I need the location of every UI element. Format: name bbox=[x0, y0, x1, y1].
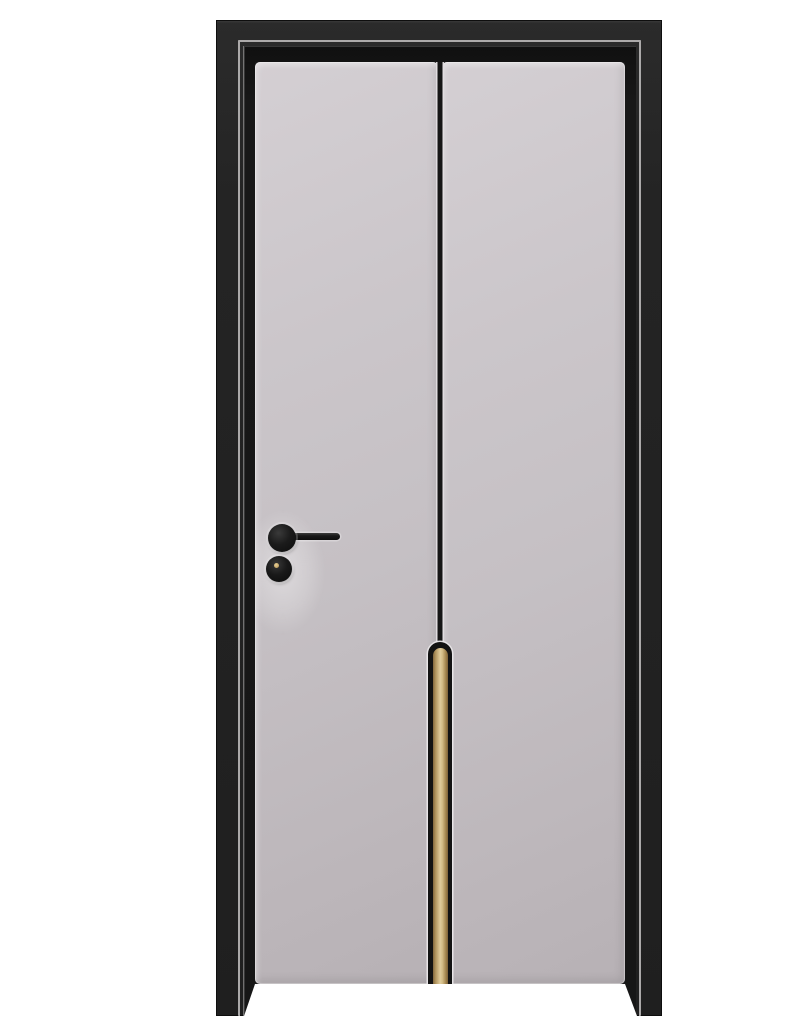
door-product-photo bbox=[40, 16, 800, 1016]
floor-opening bbox=[240, 984, 640, 1016]
brass-inlay-strip bbox=[428, 642, 452, 984]
cylinder-lock-knob bbox=[266, 556, 292, 582]
keyhole-brass-dot bbox=[274, 563, 279, 568]
lever-handle-rosette bbox=[268, 524, 296, 552]
brass-inlay-gold-face bbox=[433, 648, 448, 984]
door-panel-right bbox=[442, 62, 625, 984]
door-slab bbox=[255, 62, 625, 984]
center-groove bbox=[436, 62, 444, 650]
